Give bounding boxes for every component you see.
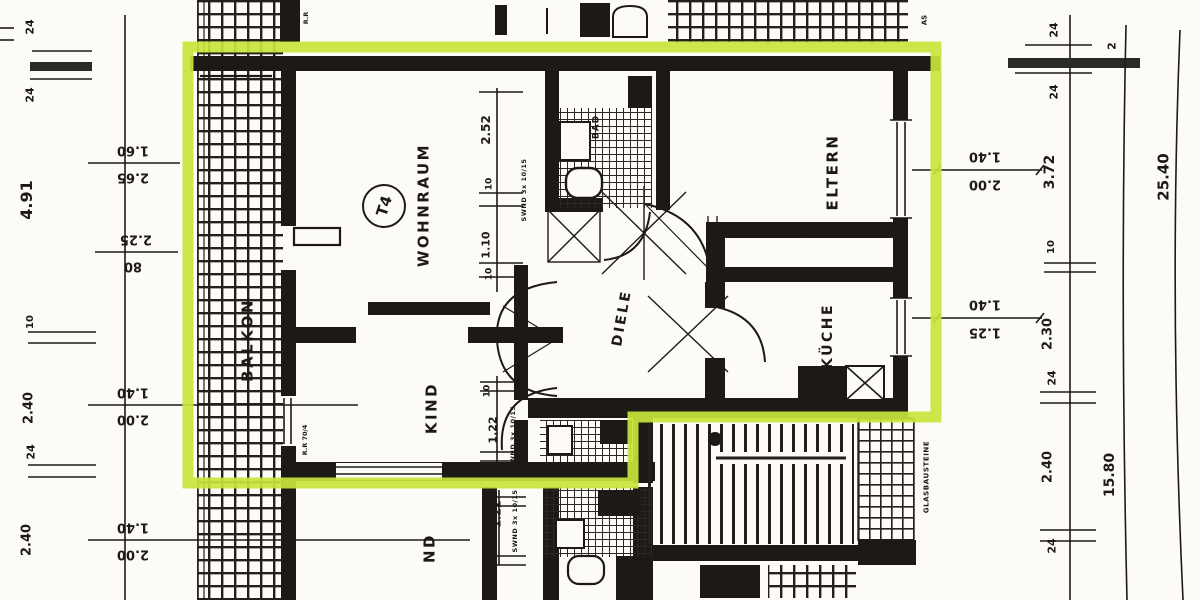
toilet-icon bbox=[566, 168, 602, 198]
unit-type-badge: T4 bbox=[362, 184, 406, 228]
dim-label: 10 bbox=[1047, 240, 1057, 254]
note-as-top: AS bbox=[922, 15, 929, 25]
dim-label: 80 bbox=[124, 260, 142, 273]
sink-icon bbox=[560, 122, 590, 160]
note-glasbausteine: GLASBAUSTEINE bbox=[924, 441, 931, 514]
dim-label: 24 bbox=[1049, 22, 1060, 37]
dim-label: 2.00 bbox=[117, 413, 149, 426]
wc-niche-fixtures bbox=[540, 420, 632, 462]
dim-label: 24 bbox=[25, 19, 36, 34]
room-label-kueche: KÜCHE bbox=[821, 303, 835, 369]
note-rr-top: R.R bbox=[303, 12, 310, 25]
room-label-eltern: ELTERN bbox=[826, 134, 841, 211]
room-label-balkon: BALKON bbox=[241, 298, 256, 382]
dim-label: 2.00 bbox=[117, 548, 149, 561]
dim-label: 24 bbox=[26, 444, 37, 459]
dim-label: 10 bbox=[26, 315, 36, 329]
open-door-leaf bbox=[368, 302, 490, 315]
dim-label: 2.25 bbox=[120, 233, 152, 246]
bad-fixtures bbox=[559, 76, 652, 208]
diele-cross-marks bbox=[548, 186, 728, 372]
note-rr: R.R 70/4 bbox=[302, 425, 309, 456]
window-note: SWND 3x 10/15 bbox=[521, 159, 528, 222]
room-label-kind: KIND bbox=[425, 382, 440, 434]
room-label-bad: BAD bbox=[593, 115, 602, 139]
stairs bbox=[648, 424, 854, 544]
dim-label: 2.65 bbox=[117, 171, 149, 184]
dim-label: 1.40 bbox=[969, 298, 1001, 311]
scanned-floor-plan: 24 24 4.91 10 2.40 24 2.40 1.60 2.65 2.2… bbox=[0, 0, 1200, 600]
dim-label: 2.40 bbox=[1042, 451, 1055, 483]
dim-label: 3.72 bbox=[1043, 155, 1057, 190]
unit-type-label: T4 bbox=[372, 193, 396, 218]
dim-label: 10 bbox=[488, 543, 497, 556]
dim-label: 10 bbox=[486, 268, 495, 281]
room-label-wohnraum: WOHNRAUM bbox=[417, 143, 432, 267]
dim-label: 1.40 bbox=[117, 386, 149, 399]
window-note: SWND 3x 10/15 bbox=[512, 490, 519, 553]
dim-label: 24 bbox=[1047, 370, 1058, 385]
upper-floor-fragments bbox=[280, 0, 908, 42]
dim-label: 2.40 bbox=[21, 524, 34, 556]
dim-label: 1.22 bbox=[492, 500, 503, 527]
dim-label: 1.10 bbox=[481, 231, 492, 258]
dim-label: 2.00 bbox=[969, 178, 1001, 191]
room-label-kind-lower: ND bbox=[423, 533, 438, 563]
dim-label: 10 bbox=[724, 222, 734, 236]
dim-label: 24 bbox=[1047, 538, 1058, 553]
dim-label: 24 bbox=[1049, 84, 1060, 99]
dim-label: 2.30 bbox=[1042, 318, 1055, 350]
dim-label: 2 bbox=[1107, 42, 1118, 50]
dim-label: 3.30 bbox=[779, 225, 809, 237]
dim-label: 1.22 bbox=[488, 416, 499, 443]
newel-post-icon bbox=[708, 432, 722, 446]
dim-label: 10 bbox=[484, 385, 493, 398]
dim-label: 2.52 bbox=[480, 115, 492, 145]
dim-label: 1.25 bbox=[969, 326, 1001, 339]
dim-label: 15.80 bbox=[1103, 453, 1117, 497]
dim-label: 24 bbox=[25, 87, 36, 102]
kitchen-fixtures bbox=[798, 366, 884, 400]
window-note: SWND 3x 10/15 bbox=[510, 406, 517, 469]
dim-label: 4.91 bbox=[19, 180, 35, 219]
dim-label: 25.40 bbox=[1157, 153, 1172, 200]
balcony-door-leaf bbox=[294, 228, 340, 245]
floor-plan-drawing bbox=[0, 0, 1200, 600]
dim-label: 2.40 bbox=[23, 392, 36, 424]
dim-label: 10 bbox=[486, 178, 495, 191]
dim-label: 1.60 bbox=[117, 144, 149, 157]
dim-label: 1.40 bbox=[969, 150, 1001, 163]
glass-block-wall bbox=[858, 418, 916, 565]
dim-label: 1.40 bbox=[117, 521, 149, 534]
